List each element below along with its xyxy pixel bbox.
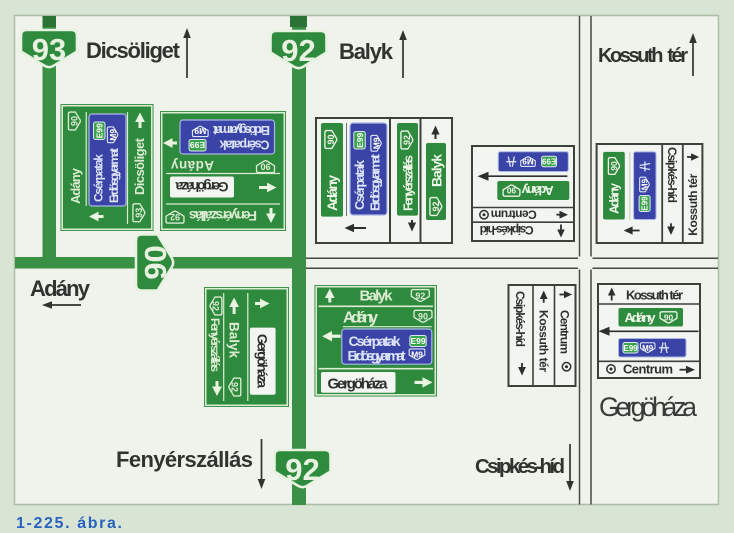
svg-text:Dicsöliget: Dicsöliget (86, 38, 181, 63)
svg-text:Erdösgyarmat: Erdösgyarmat (212, 123, 270, 137)
svg-text:Centrum: Centrum (491, 208, 537, 222)
svg-text:M9: M9 (108, 129, 118, 141)
svg-text:92: 92 (281, 33, 315, 68)
svg-text:Adány: Adány (30, 276, 91, 301)
svg-text:93: 93 (32, 32, 66, 67)
svg-text:Kossuth tér: Kossuth tér (686, 173, 700, 235)
svg-text:92: 92 (402, 135, 412, 145)
svg-text:Csipkés-híd: Csipkés-híd (665, 147, 679, 203)
svg-text:92: 92 (285, 452, 319, 487)
svg-text:Csérpatak: Csérpatak (92, 154, 106, 202)
svg-text:92: 92 (211, 301, 221, 311)
svg-text:Erdösgyarmat: Erdösgyarmat (107, 148, 121, 203)
svg-text:Fenyérszállás: Fenyérszállás (189, 208, 257, 223)
svg-text:90: 90 (138, 245, 173, 279)
svg-text:E99: E99 (410, 336, 425, 346)
svg-text:92: 92 (170, 212, 180, 222)
svg-text:Balyk: Balyk (360, 288, 394, 305)
svg-text:Balyk: Balyk (429, 154, 445, 187)
svg-text:90: 90 (609, 161, 619, 171)
svg-text:Gergöháza: Gergöháza (328, 375, 389, 392)
svg-text:Adány: Adány (68, 167, 83, 204)
svg-text:M9: M9 (522, 157, 534, 166)
svg-text:E99: E99 (355, 132, 365, 147)
svg-text:Centrum: Centrum (623, 362, 673, 377)
svg-text:Fenyérszállás: Fenyérszállás (208, 318, 222, 372)
svg-text:Gergöháza: Gergöháza (599, 392, 697, 422)
svg-text:Centrum: Centrum (558, 310, 572, 354)
svg-text:Csipkés-híd: Csipkés-híd (475, 455, 565, 478)
svg-text:90: 90 (70, 116, 80, 126)
svg-text:92: 92 (230, 382, 240, 392)
svg-text:Erdösgyarmat: Erdösgyarmat (368, 153, 383, 211)
svg-text:Csipkés-híd: Csipkés-híd (513, 291, 527, 347)
svg-text:Kossuth tér: Kossuth tér (598, 45, 688, 67)
svg-text:Balyk: Balyk (339, 39, 394, 64)
svg-text:Dicsöliget: Dicsöliget (132, 137, 147, 195)
svg-text:M9: M9 (641, 178, 650, 190)
svg-text:Adány: Adány (608, 183, 622, 214)
svg-text:Kossuth tér: Kossuth tér (626, 288, 683, 303)
svg-text:90: 90 (326, 135, 336, 145)
svg-text:Csipkés-híd: Csipkés-híd (480, 223, 534, 237)
svg-text:Gergöháza: Gergöháza (175, 179, 228, 194)
svg-text:Fenyérszállás: Fenyérszállás (402, 155, 416, 211)
svg-text:E99: E99 (190, 140, 205, 150)
svg-text:Csérpatak: Csérpatak (219, 138, 269, 152)
svg-text:E99: E99 (95, 123, 105, 138)
svg-text:M9: M9 (642, 344, 654, 353)
svg-text:Gergöháza: Gergöháza (255, 334, 270, 388)
svg-text:E99: E99 (541, 157, 556, 166)
svg-text:E99: E99 (623, 344, 638, 353)
svg-text:90: 90 (664, 313, 674, 323)
svg-text:Adány: Adány (625, 310, 657, 325)
svg-text:90: 90 (507, 186, 517, 196)
svg-text:Erdösgyarmat: Erdösgyarmat (348, 348, 406, 364)
svg-text:Adány: Adány (324, 175, 340, 211)
svg-text:90: 90 (261, 161, 271, 171)
svg-text:Adány: Adány (171, 158, 214, 173)
svg-text:Adány: Adány (343, 309, 378, 326)
svg-text:93: 93 (134, 208, 144, 218)
svg-text:Csérpatak: Csérpatak (352, 159, 367, 210)
svg-text:E99: E99 (641, 196, 650, 211)
svg-text:92: 92 (415, 291, 425, 301)
svg-text:Kossuth tér: Kossuth tér (537, 310, 551, 372)
svg-text:M9: M9 (411, 350, 423, 360)
svg-text:92: 92 (431, 202, 441, 212)
svg-text:M9: M9 (372, 137, 382, 149)
svg-text:Adány: Adány (522, 183, 554, 197)
svg-text:Fenyérszállás: Fenyérszállás (116, 447, 253, 472)
svg-text:Balyk: Balyk (227, 322, 242, 358)
svg-text:90: 90 (418, 312, 428, 322)
svg-text:M9: M9 (194, 126, 206, 136)
